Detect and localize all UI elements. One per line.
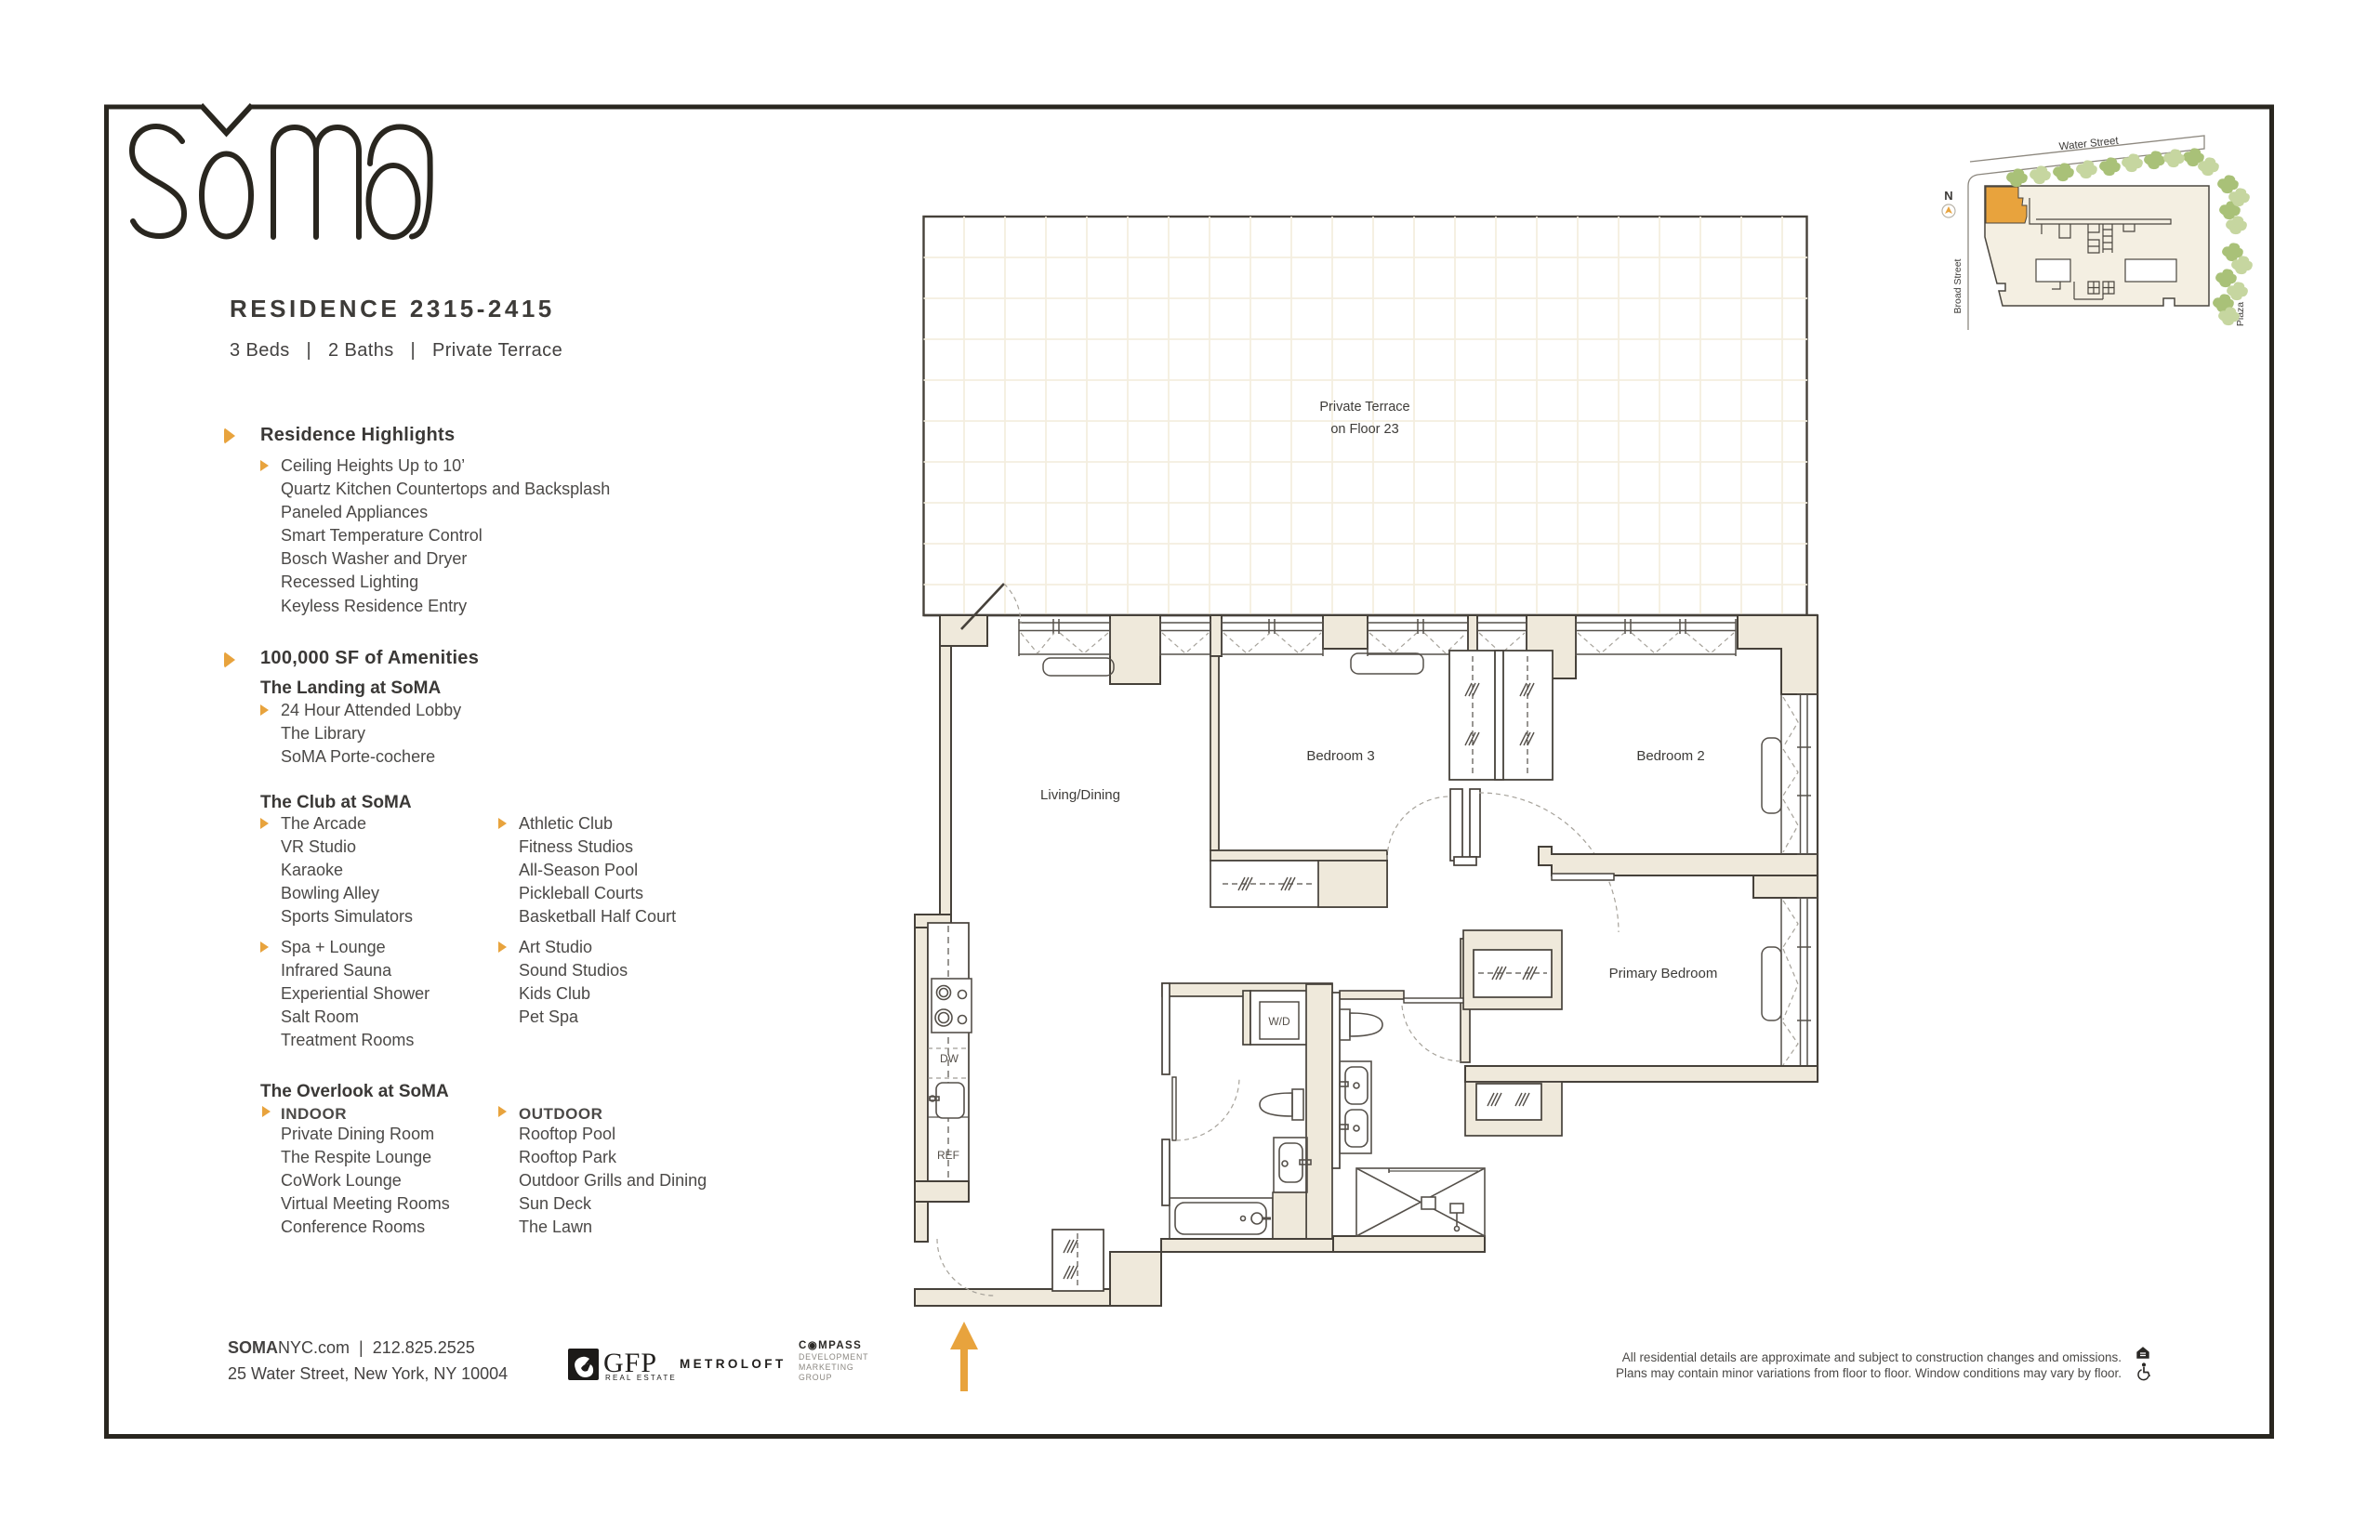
- svg-text:GROUP: GROUP: [799, 1373, 832, 1382]
- svg-text:N: N: [1944, 189, 1952, 203]
- svg-text:Water Street: Water Street: [2058, 136, 2120, 153]
- svg-text:Broad Street: Broad Street: [1952, 258, 1963, 313]
- svg-text:DEVELOPMENT: DEVELOPMENT: [799, 1352, 868, 1362]
- svg-text:C◉MPASS: C◉MPASS: [799, 1340, 862, 1351]
- svg-text:MARKETING: MARKETING: [799, 1362, 854, 1372]
- svg-text:REAL ESTATE: REAL ESTATE: [605, 1374, 677, 1382]
